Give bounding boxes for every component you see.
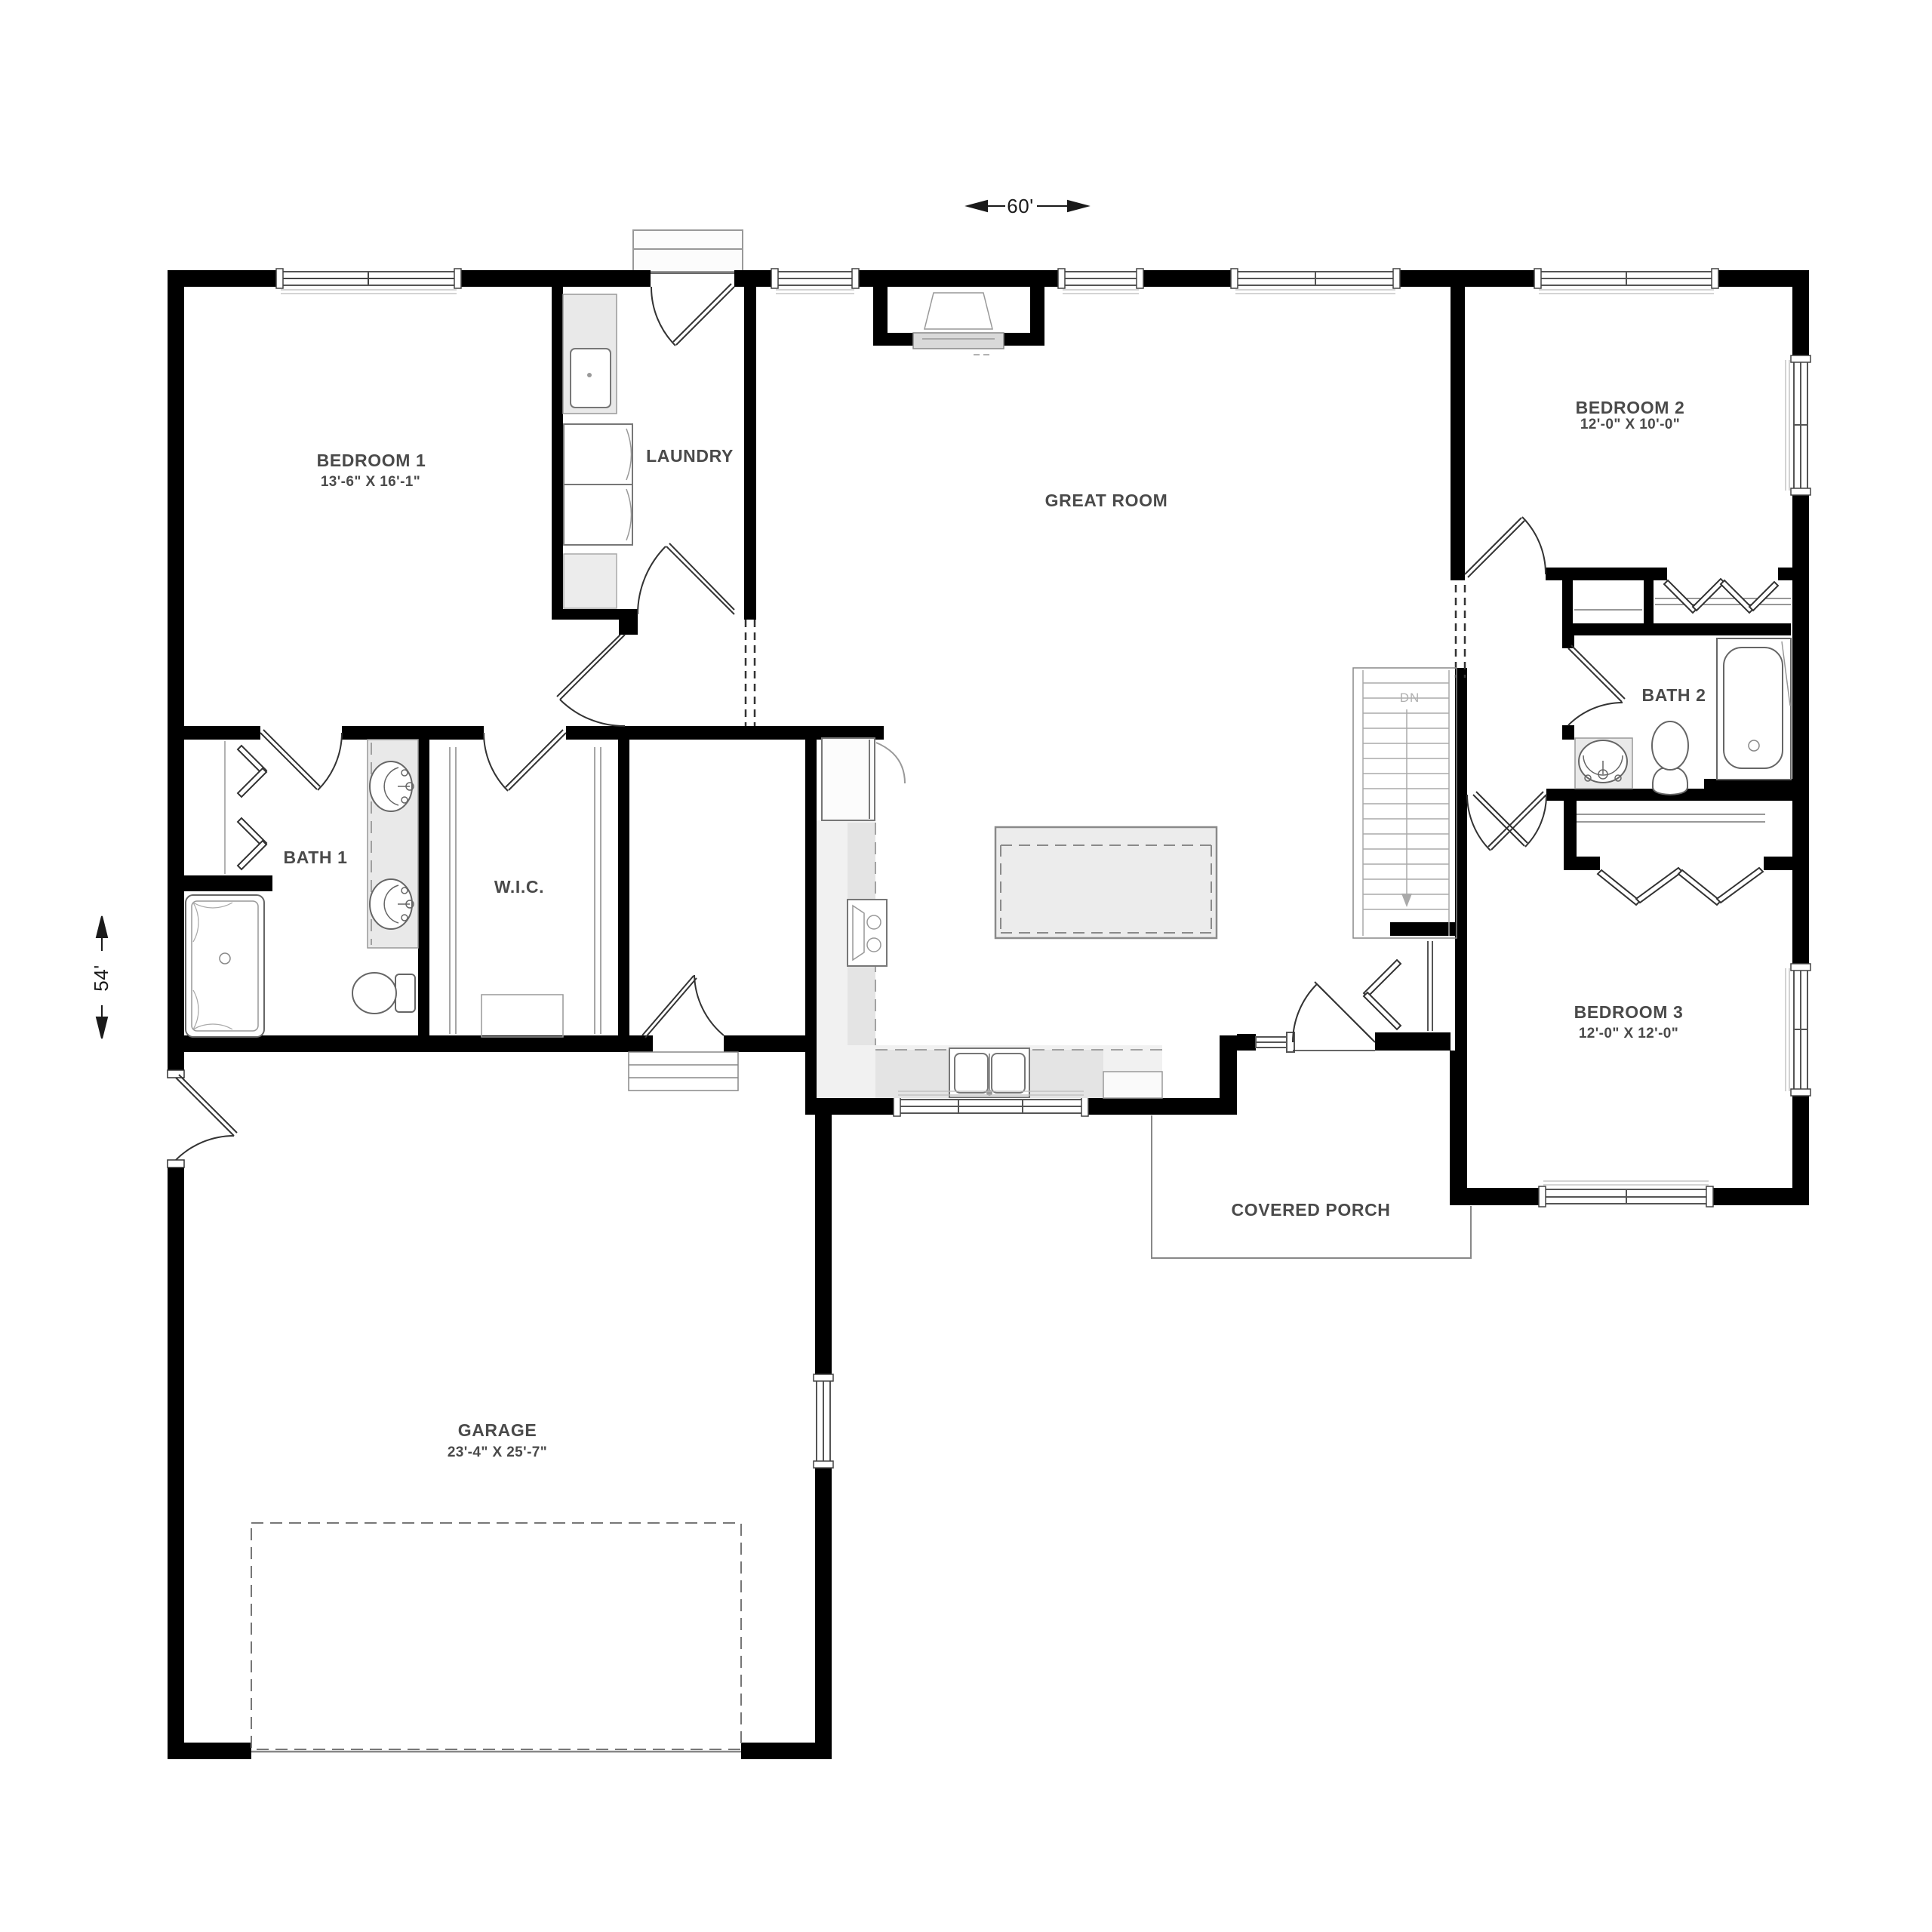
- svg-text:60': 60': [1007, 195, 1033, 217]
- svg-text:BEDROOM 2: BEDROOM 2: [1576, 398, 1685, 417]
- svg-text:GARAGE: GARAGE: [458, 1420, 537, 1440]
- svg-text:DN: DN: [1400, 691, 1420, 705]
- svg-text:GREAT ROOM: GREAT ROOM: [1045, 491, 1168, 510]
- svg-text:BATH 1: BATH 1: [284, 848, 348, 867]
- svg-text:BATH 2: BATH 2: [1642, 685, 1706, 705]
- svg-text:54': 54': [90, 964, 112, 991]
- svg-text:W.I.C.: W.I.C.: [494, 877, 544, 897]
- svg-text:BEDROOM 3: BEDROOM 3: [1574, 1002, 1684, 1022]
- svg-text:BEDROOM 1: BEDROOM 1: [317, 451, 426, 470]
- svg-text:LAUNDRY: LAUNDRY: [646, 446, 734, 466]
- svg-text:12'-0" X 12'-0": 12'-0" X 12'-0": [1579, 1026, 1678, 1041]
- svg-text:23'-4" X 25'-7": 23'-4" X 25'-7": [448, 1444, 547, 1460]
- svg-text:12'-0" X 10'-0": 12'-0" X 10'-0": [1580, 417, 1680, 432]
- svg-text:13'-6" X 16'-1": 13'-6" X 16'-1": [321, 474, 420, 490]
- svg-text:COVERED PORCH: COVERED PORCH: [1232, 1200, 1391, 1220]
